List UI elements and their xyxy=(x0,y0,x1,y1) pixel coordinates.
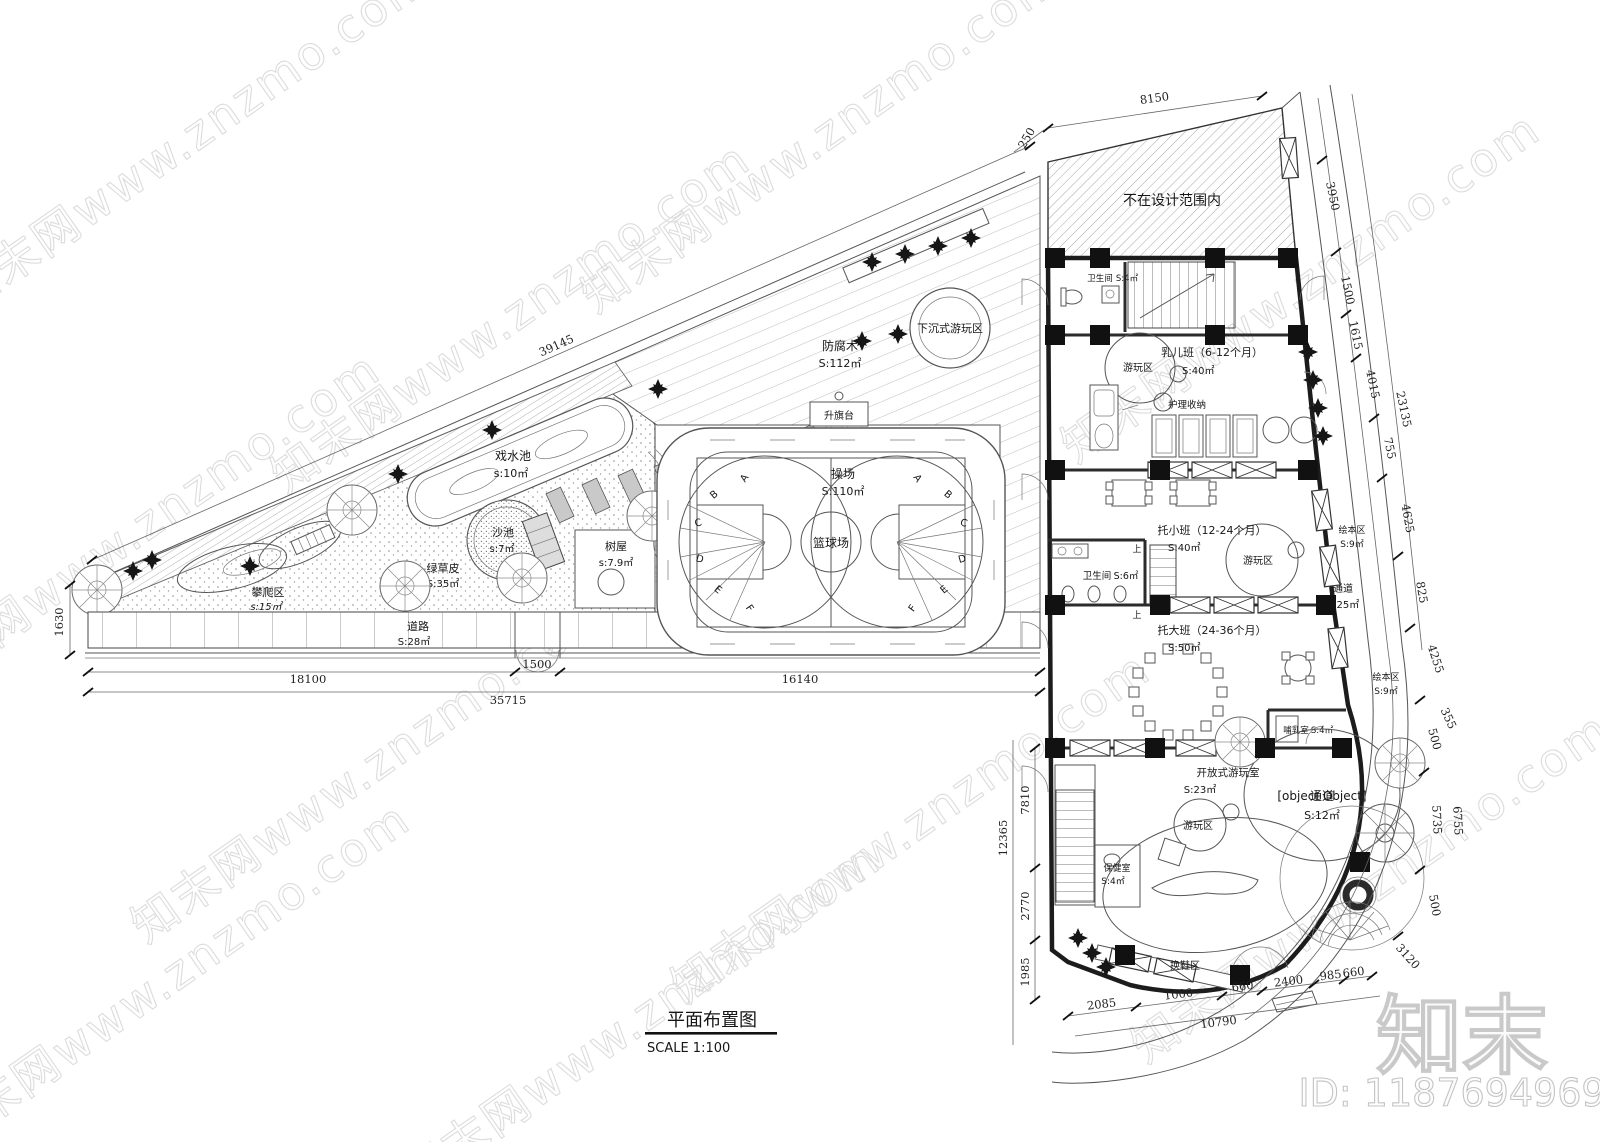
dim-7810: 7810 xyxy=(1018,785,1032,814)
tree-house-area: s:7.9㎡ xyxy=(599,557,633,569)
toddler-large-label: 托大班（24-36个月） xyxy=(1158,623,1267,637)
window-icon xyxy=(1170,597,1210,613)
tree-house-label: 树屋 xyxy=(605,539,627,553)
play-zone-label: 游玩区 xyxy=(1123,361,1153,374)
dim-1630: 1630 xyxy=(52,607,66,636)
wc-mid-area: S:6㎡ xyxy=(1114,571,1139,582)
window-icon xyxy=(1258,597,1298,613)
drawing-scale: SCALE 1:100 xyxy=(647,1041,730,1056)
wc-mid-label: 卫生间 xyxy=(1083,570,1112,582)
dim-12365: 12365 xyxy=(996,820,1010,857)
window-icon xyxy=(1280,137,1299,178)
window-icon xyxy=(1320,545,1341,587)
sand-pit-label: 沙池 xyxy=(492,526,514,539)
dim-3120: 3120 xyxy=(1393,941,1423,972)
open-play-label: 开放式游玩室 xyxy=(1197,766,1260,779)
play-zone-label: 游玩区 xyxy=(1243,554,1273,567)
window-icon xyxy=(1236,462,1276,478)
watermark-text: 知末网www.znzmo.com xyxy=(0,0,440,323)
tree-icon xyxy=(497,553,547,603)
dim-5735: 5735 xyxy=(1429,805,1445,835)
passage-label: 通道 xyxy=(1310,789,1334,803)
lactation-area: S:4㎡ xyxy=(1311,726,1334,736)
playground: 操场 S:110㎡ 篮球场 A B C D E F A B C D E F xyxy=(657,428,1005,655)
dim-4625: 4625 xyxy=(1399,503,1418,534)
out-of-scope-area xyxy=(1048,108,1296,258)
dim-35715: 35715 xyxy=(490,693,527,707)
infant-label: 乳儿班（6-12个月） xyxy=(1161,346,1263,359)
stair-up-label: 上 xyxy=(1132,544,1141,555)
climb-label: 攀爬区 xyxy=(252,586,285,599)
open-play-area: S:23㎡ xyxy=(1184,784,1216,796)
dim-2770: 2770 xyxy=(1018,891,1032,920)
books-label: 绘本区 xyxy=(1338,524,1365,536)
flag-platform-label: 升旗台 xyxy=(824,409,854,422)
watermark-id: ID: 1187694969 xyxy=(1298,1071,1600,1115)
shoe-change-label: 换鞋区 xyxy=(1170,959,1200,972)
wc-top-label: 卫生间 xyxy=(1087,273,1113,284)
window-icon xyxy=(1070,740,1110,756)
books-area: S:9㎡ xyxy=(1374,686,1397,697)
books-label: 绘本区 xyxy=(1372,671,1399,683)
stair-top xyxy=(1128,262,1235,328)
window-icon xyxy=(1176,740,1216,756)
dim-985: 985 xyxy=(1319,967,1342,984)
watermark-text: 知末网www.znzmo.com xyxy=(391,831,890,1142)
passage-area: S:12㎡ xyxy=(1304,809,1340,822)
window-icon xyxy=(1328,627,1348,668)
health-label: 保健室 xyxy=(1103,862,1130,874)
window-icon xyxy=(1192,462,1232,478)
lawn-label: 绿草皮 xyxy=(427,561,460,575)
dim-660a: 660 xyxy=(1231,978,1254,995)
drawing-title: 平面布置图 xyxy=(667,1010,757,1031)
sand-pit-area: s:7㎡ xyxy=(490,543,515,555)
dim-3950: 3950 xyxy=(1323,180,1343,212)
out-of-scope-label: 不在设计范围内 xyxy=(1123,192,1221,209)
climb-area: s:15㎡ xyxy=(250,601,283,613)
dim-825: 825 xyxy=(1413,580,1431,604)
tree-icon xyxy=(1375,738,1425,788)
toddler-small-area: S:40㎡ xyxy=(1168,542,1200,554)
dim-4015: 4015 xyxy=(1363,368,1383,400)
toddler-large-area: S:50㎡ xyxy=(1168,642,1200,654)
dim-6755: 6755 xyxy=(1450,806,1466,836)
play-zone-label: 游玩区 xyxy=(1183,819,1213,832)
shrub-icon xyxy=(1068,928,1088,948)
infant-area: S:40㎡ xyxy=(1182,365,1214,377)
dim-16140: 16140 xyxy=(782,672,819,686)
dim-2400: 2400 xyxy=(1273,972,1304,989)
lawn-area: S:35㎡ xyxy=(427,578,459,590)
dim-8150: 8150 xyxy=(1139,89,1170,107)
dim-355: 355 xyxy=(1438,705,1460,731)
dim-500a: 500 xyxy=(1425,727,1444,752)
cad-floor-plan: 知末网www.znzmo.com 知末网www.znzmo.com 知末网www… xyxy=(0,0,1600,1142)
field-area: S:110㎡ xyxy=(822,485,865,498)
nursing-storage-label: 护理收纳 xyxy=(1168,399,1206,411)
water-pool-label: 戏水池 xyxy=(495,449,531,463)
window-icon xyxy=(1312,489,1333,531)
wc-top xyxy=(1061,286,1119,306)
dim-500b: 500 xyxy=(1426,893,1444,917)
deck-area: S:112㎡ xyxy=(819,357,862,370)
brand-block: 知末 ID: 1187694969 xyxy=(1298,987,1600,1115)
dim-1985: 1985 xyxy=(1018,957,1032,986)
toddler-small-label: 托小班（12-24个月） xyxy=(1158,523,1267,537)
dim-660b: 660 xyxy=(1342,964,1365,981)
books-area: S:9㎡ xyxy=(1340,539,1363,550)
tree-icon xyxy=(327,485,377,535)
health-area: S:4㎡ xyxy=(1101,876,1124,887)
road-label: 道路 xyxy=(407,619,429,633)
dim-1500: 1500 xyxy=(522,657,551,671)
deck-label: 防腐木 xyxy=(822,338,858,353)
field-label: 操场 xyxy=(831,466,855,481)
dim-18100: 18100 xyxy=(290,672,327,686)
window-icon xyxy=(1214,597,1254,613)
basketball-label: 篮球场 xyxy=(813,535,849,550)
watermark-text: 知末网www.znzmo.com xyxy=(0,791,420,1142)
sunken-play-label: 下沉式游玩区 xyxy=(917,322,983,335)
road-area: S:28㎡ xyxy=(398,636,430,648)
water-pool-area: s:10㎡ xyxy=(494,467,528,480)
dim-4255: 4255 xyxy=(1425,643,1447,675)
tree-icon xyxy=(72,565,122,615)
tree-icon xyxy=(380,561,430,611)
stair-up-label: 上 xyxy=(1132,610,1141,621)
dim-1615: 1615 xyxy=(1346,319,1366,351)
dim-755: 755 xyxy=(1381,436,1399,460)
